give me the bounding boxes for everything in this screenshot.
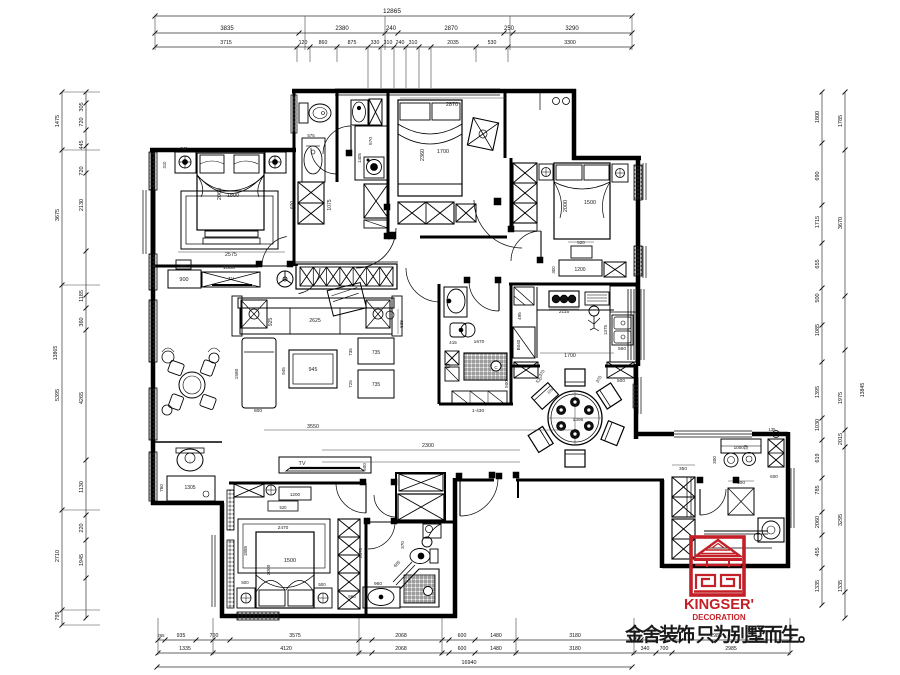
svg-text:560: 560 xyxy=(618,346,626,352)
svg-text:1670: 1670 xyxy=(474,339,485,345)
svg-text:13845: 13845 xyxy=(860,383,866,398)
svg-text:4120: 4120 xyxy=(280,646,292,652)
svg-text:360: 360 xyxy=(79,317,85,326)
svg-text:305: 305 xyxy=(79,102,85,111)
svg-text:935: 935 xyxy=(177,633,186,639)
svg-text:1785: 1785 xyxy=(838,115,844,127)
svg-text:960: 960 xyxy=(348,594,356,599)
svg-text:1945: 1945 xyxy=(79,554,85,566)
svg-text:13865: 13865 xyxy=(53,346,59,361)
svg-text:2360: 2360 xyxy=(420,149,426,161)
svg-text:860: 860 xyxy=(319,40,328,46)
svg-text:785: 785 xyxy=(815,485,821,494)
svg-text:619: 619 xyxy=(815,453,821,462)
svg-text:600: 600 xyxy=(458,646,467,652)
svg-text:2300: 2300 xyxy=(422,443,434,449)
svg-text:500: 500 xyxy=(815,293,821,302)
svg-text:495: 495 xyxy=(517,312,522,320)
svg-text:265: 265 xyxy=(158,633,166,638)
svg-text:1085: 1085 xyxy=(815,324,821,336)
svg-text:1335: 1335 xyxy=(815,580,821,592)
svg-text:1405: 1405 xyxy=(357,153,362,163)
svg-text:638: 638 xyxy=(399,320,404,328)
svg-text:700: 700 xyxy=(660,646,669,652)
svg-text:3180: 3180 xyxy=(569,646,581,652)
svg-text:12865: 12865 xyxy=(383,8,401,15)
svg-text:B040: B040 xyxy=(516,339,521,350)
svg-text:1200: 1200 xyxy=(290,492,301,497)
svg-text:340: 340 xyxy=(641,646,650,652)
svg-text:220: 220 xyxy=(79,523,85,532)
svg-text:1335: 1335 xyxy=(179,646,191,652)
svg-text:500: 500 xyxy=(617,378,625,384)
svg-text:3180: 3180 xyxy=(569,633,581,639)
svg-text:2068: 2068 xyxy=(395,646,407,652)
svg-text:445: 445 xyxy=(79,140,85,149)
svg-text:500: 500 xyxy=(362,463,367,471)
svg-text:3835: 3835 xyxy=(220,26,234,32)
svg-text:600: 600 xyxy=(458,633,467,639)
svg-text:800: 800 xyxy=(254,408,262,414)
svg-text:4265: 4265 xyxy=(79,392,85,404)
svg-text:040: 040 xyxy=(180,263,187,268)
svg-text:3300: 3300 xyxy=(564,40,576,46)
svg-text:960: 960 xyxy=(374,581,382,587)
svg-text:2380: 2380 xyxy=(335,26,349,32)
svg-text:3575: 3575 xyxy=(289,633,301,639)
svg-text:1500: 1500 xyxy=(584,200,596,206)
svg-text:3715: 3715 xyxy=(220,40,232,46)
svg-text:690: 690 xyxy=(815,171,821,180)
svg-text:1075: 1075 xyxy=(327,199,333,210)
svg-text:3295: 3295 xyxy=(838,514,844,526)
svg-text:925: 925 xyxy=(268,318,274,327)
svg-text:600: 600 xyxy=(770,474,778,479)
svg-text:2000: 2000 xyxy=(563,200,569,212)
svg-text:520: 520 xyxy=(280,505,288,510)
svg-text:1000改: 1000改 xyxy=(734,444,749,451)
svg-text:2115: 2115 xyxy=(559,309,570,315)
svg-text:2470: 2470 xyxy=(278,525,289,531)
svg-text:1580: 1580 xyxy=(234,368,240,379)
svg-text:795: 795 xyxy=(55,611,61,620)
svg-text:2575: 2575 xyxy=(225,252,237,258)
svg-text:250: 250 xyxy=(504,26,515,32)
svg-text:720: 720 xyxy=(79,166,85,175)
svg-text:TV: TV xyxy=(228,276,235,281)
svg-text:945: 945 xyxy=(281,367,286,375)
svg-text:2060: 2060 xyxy=(815,516,821,528)
svg-text:1-430: 1-430 xyxy=(472,408,485,414)
svg-text:500: 500 xyxy=(241,580,249,585)
svg-text:16940: 16940 xyxy=(462,660,477,666)
svg-text:735: 735 xyxy=(348,348,353,356)
svg-text:KINGSER': KINGSER' xyxy=(684,597,754,613)
svg-text:415: 415 xyxy=(449,340,457,345)
svg-text:1700: 1700 xyxy=(564,353,576,359)
svg-text:1800: 1800 xyxy=(815,111,821,123)
svg-text:1700: 1700 xyxy=(437,149,449,155)
svg-text:700: 700 xyxy=(210,633,219,639)
svg-text:1130: 1130 xyxy=(79,481,85,493)
svg-text:2060: 2060 xyxy=(217,188,223,200)
svg-text:1500: 1500 xyxy=(284,558,296,564)
svg-text:455: 455 xyxy=(815,547,821,556)
svg-text:2130: 2130 xyxy=(79,199,85,211)
svg-text:1375: 1375 xyxy=(603,324,608,335)
svg-text:1305: 1305 xyxy=(184,485,195,491)
svg-text:370: 370 xyxy=(400,541,405,549)
svg-text:1480: 1480 xyxy=(490,646,502,652)
svg-text:1480: 1480 xyxy=(490,633,502,639)
svg-text:TV: TV xyxy=(298,461,305,467)
svg-text:875: 875 xyxy=(348,40,357,46)
svg-text:金舍装饰 只为别墅而生。: 金舍装饰 只为别墅而生。 xyxy=(624,623,815,646)
svg-text:2870: 2870 xyxy=(444,26,458,32)
svg-text:2470: 2470 xyxy=(358,547,363,558)
svg-text:2000: 2000 xyxy=(266,564,272,575)
svg-text:120: 120 xyxy=(299,40,308,46)
svg-text:500: 500 xyxy=(318,582,326,587)
svg-text:330: 330 xyxy=(371,40,380,46)
svg-text:3290: 3290 xyxy=(565,26,579,32)
svg-text:1975: 1975 xyxy=(838,392,844,404)
svg-text:2035: 2035 xyxy=(447,40,459,46)
svg-text:520: 520 xyxy=(577,240,585,245)
svg-text:350: 350 xyxy=(679,466,687,472)
svg-text:3670: 3670 xyxy=(838,217,844,229)
svg-text:1885: 1885 xyxy=(243,545,248,556)
svg-text:540: 540 xyxy=(181,146,189,151)
svg-text:300: 300 xyxy=(712,456,717,464)
svg-text:5395: 5395 xyxy=(55,389,61,401)
svg-text:1200: 1200 xyxy=(574,267,585,273)
svg-text:720: 720 xyxy=(79,117,85,126)
svg-text:900: 900 xyxy=(179,277,188,283)
svg-text:725: 725 xyxy=(348,380,353,388)
svg-text:310: 310 xyxy=(162,161,167,169)
svg-text:240: 240 xyxy=(386,26,397,32)
svg-text:3550: 3550 xyxy=(307,424,319,430)
svg-text:2068: 2068 xyxy=(395,633,407,639)
svg-text:240: 240 xyxy=(396,40,405,46)
svg-text:1395: 1395 xyxy=(573,417,584,423)
svg-text:735: 735 xyxy=(372,350,381,356)
svg-text:1030: 1030 xyxy=(815,419,821,431)
svg-text:2015: 2015 xyxy=(838,433,844,445)
svg-text:735: 735 xyxy=(372,382,381,388)
svg-text:945: 945 xyxy=(309,367,318,373)
svg-text:1185: 1185 xyxy=(79,290,85,302)
svg-text:655: 655 xyxy=(815,259,821,268)
svg-text:760: 760 xyxy=(159,484,164,492)
svg-text:1800: 1800 xyxy=(227,193,239,199)
svg-text:2710: 2710 xyxy=(55,550,61,562)
svg-text:2625: 2625 xyxy=(309,318,321,324)
svg-text:600: 600 xyxy=(290,201,296,210)
svg-text:310: 310 xyxy=(409,40,418,46)
svg-text:300: 300 xyxy=(551,266,556,274)
svg-text:570: 570 xyxy=(368,137,374,145)
svg-text:1335: 1335 xyxy=(838,580,844,592)
svg-text:2870: 2870 xyxy=(446,102,458,108)
svg-text:DECORATION: DECORATION xyxy=(692,613,745,622)
svg-text:1475: 1475 xyxy=(55,115,61,127)
svg-text:1715: 1715 xyxy=(815,216,821,228)
svg-text:1395: 1395 xyxy=(815,386,821,398)
svg-text:530: 530 xyxy=(488,40,497,46)
svg-text:575: 575 xyxy=(307,133,315,138)
svg-text:3675: 3675 xyxy=(55,209,61,221)
svg-text:135: 135 xyxy=(769,427,777,432)
svg-text:2985: 2985 xyxy=(725,646,737,652)
svg-text:500: 500 xyxy=(504,380,509,388)
